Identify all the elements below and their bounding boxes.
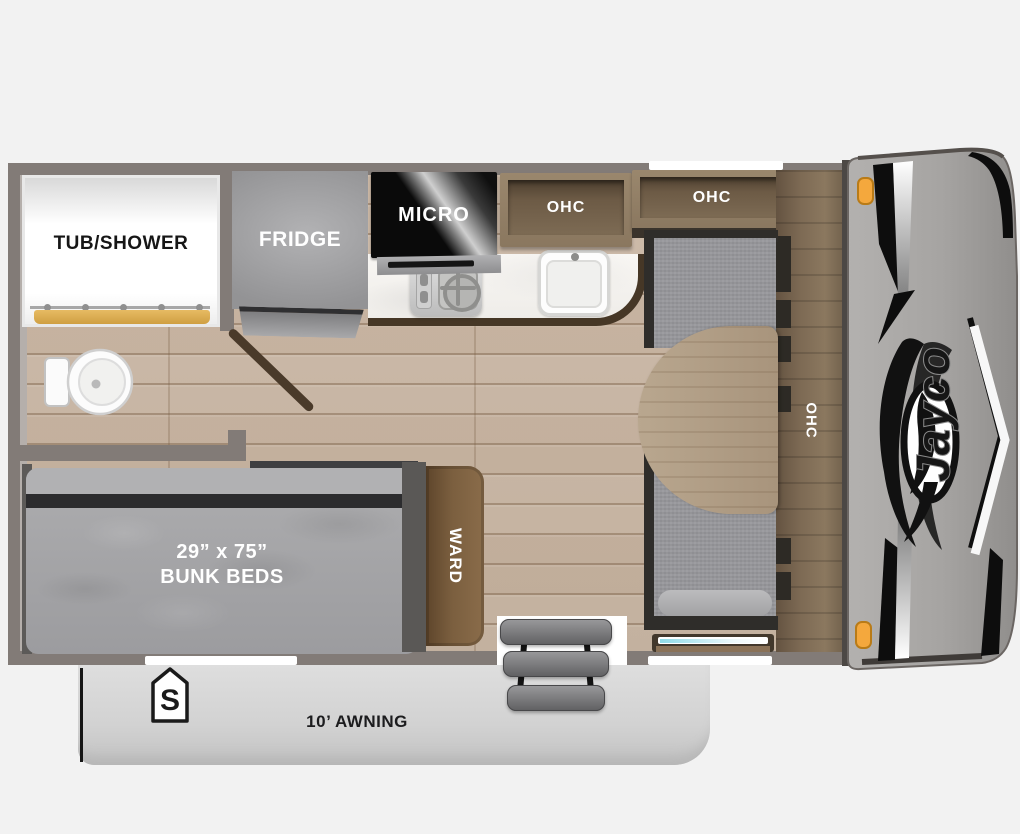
dinette-window-tint	[660, 639, 766, 643]
burner-grate	[440, 286, 476, 290]
window-bottom-wall-bunk	[145, 656, 297, 665]
rv-floorplan: TUB/SHOWER FRIDGE MICRO	[0, 0, 1020, 834]
wardrobe: WARD	[426, 466, 484, 646]
cabinet-inset	[776, 300, 791, 328]
marker-light-bottom	[856, 622, 871, 648]
cabinet-inset	[776, 386, 791, 412]
front-cap: Jayco	[842, 146, 1018, 674]
tub-shower-label: TUB/SHOWER	[54, 233, 189, 255]
ohc-kitchen-label: OHC	[547, 199, 586, 217]
jayco-logo: Jayco	[907, 346, 959, 481]
overhead-cabinet-front: OHC	[632, 170, 792, 230]
vent-slot	[388, 260, 474, 268]
overhead-cabinet-kitchen: OHC	[500, 173, 632, 247]
awning-arm	[80, 668, 83, 762]
shower-curtain	[34, 310, 210, 324]
fridge-drawer	[236, 306, 367, 338]
microwave-label: MICRO	[398, 204, 470, 227]
stove-control-panel	[416, 269, 432, 309]
stove-burner	[438, 268, 478, 310]
bathroom-bottom-wall	[8, 445, 246, 461]
stove-knob	[420, 291, 428, 303]
dinette-bolster	[658, 590, 772, 616]
bathroom-wall-notch	[228, 430, 246, 450]
burner-ring	[443, 274, 481, 312]
bunk-head-section	[26, 468, 418, 494]
kitchen-sink	[538, 250, 610, 316]
dinette-bench-trim	[644, 230, 654, 348]
marker-light-top	[858, 178, 873, 204]
cabinet-inset	[776, 336, 791, 362]
wall-left	[8, 163, 20, 665]
microwave: MICRO	[371, 172, 497, 258]
faucet	[571, 253, 579, 261]
entry-step-2	[503, 651, 609, 677]
dinette-window-sill	[656, 646, 770, 652]
spare-tire-badge: S	[150, 666, 190, 724]
toilet	[44, 348, 134, 416]
dinette-bench-trim	[644, 450, 654, 630]
window-top-wall	[649, 161, 783, 170]
upper-bunk-edge	[26, 494, 418, 508]
cabinet-recess: OHC	[640, 177, 784, 218]
entry-step-3	[507, 685, 605, 711]
window-bottom-wall-dinette	[648, 656, 772, 665]
cabinet-inset	[776, 236, 791, 292]
ohc-side: OHC	[796, 400, 826, 440]
sink-basin	[546, 260, 602, 308]
cabinet-inset	[776, 538, 791, 564]
ohc-side-label: OHC	[803, 402, 820, 438]
fridge: FRIDGE	[232, 171, 368, 309]
stove-knob	[420, 274, 428, 286]
bunk-side-panel	[402, 462, 426, 652]
entry-step-1	[500, 619, 612, 645]
range-vent	[377, 255, 501, 275]
cabinet-inset	[776, 572, 791, 600]
cabinet-recess: OHC	[508, 180, 624, 235]
wardrobe-label: WARD	[445, 528, 465, 584]
ohc-front-label: OHC	[693, 189, 732, 207]
dinette-bench-back	[644, 616, 778, 630]
spare-badge-letter: S	[160, 684, 180, 717]
fridge-label: FRIDGE	[259, 228, 341, 252]
